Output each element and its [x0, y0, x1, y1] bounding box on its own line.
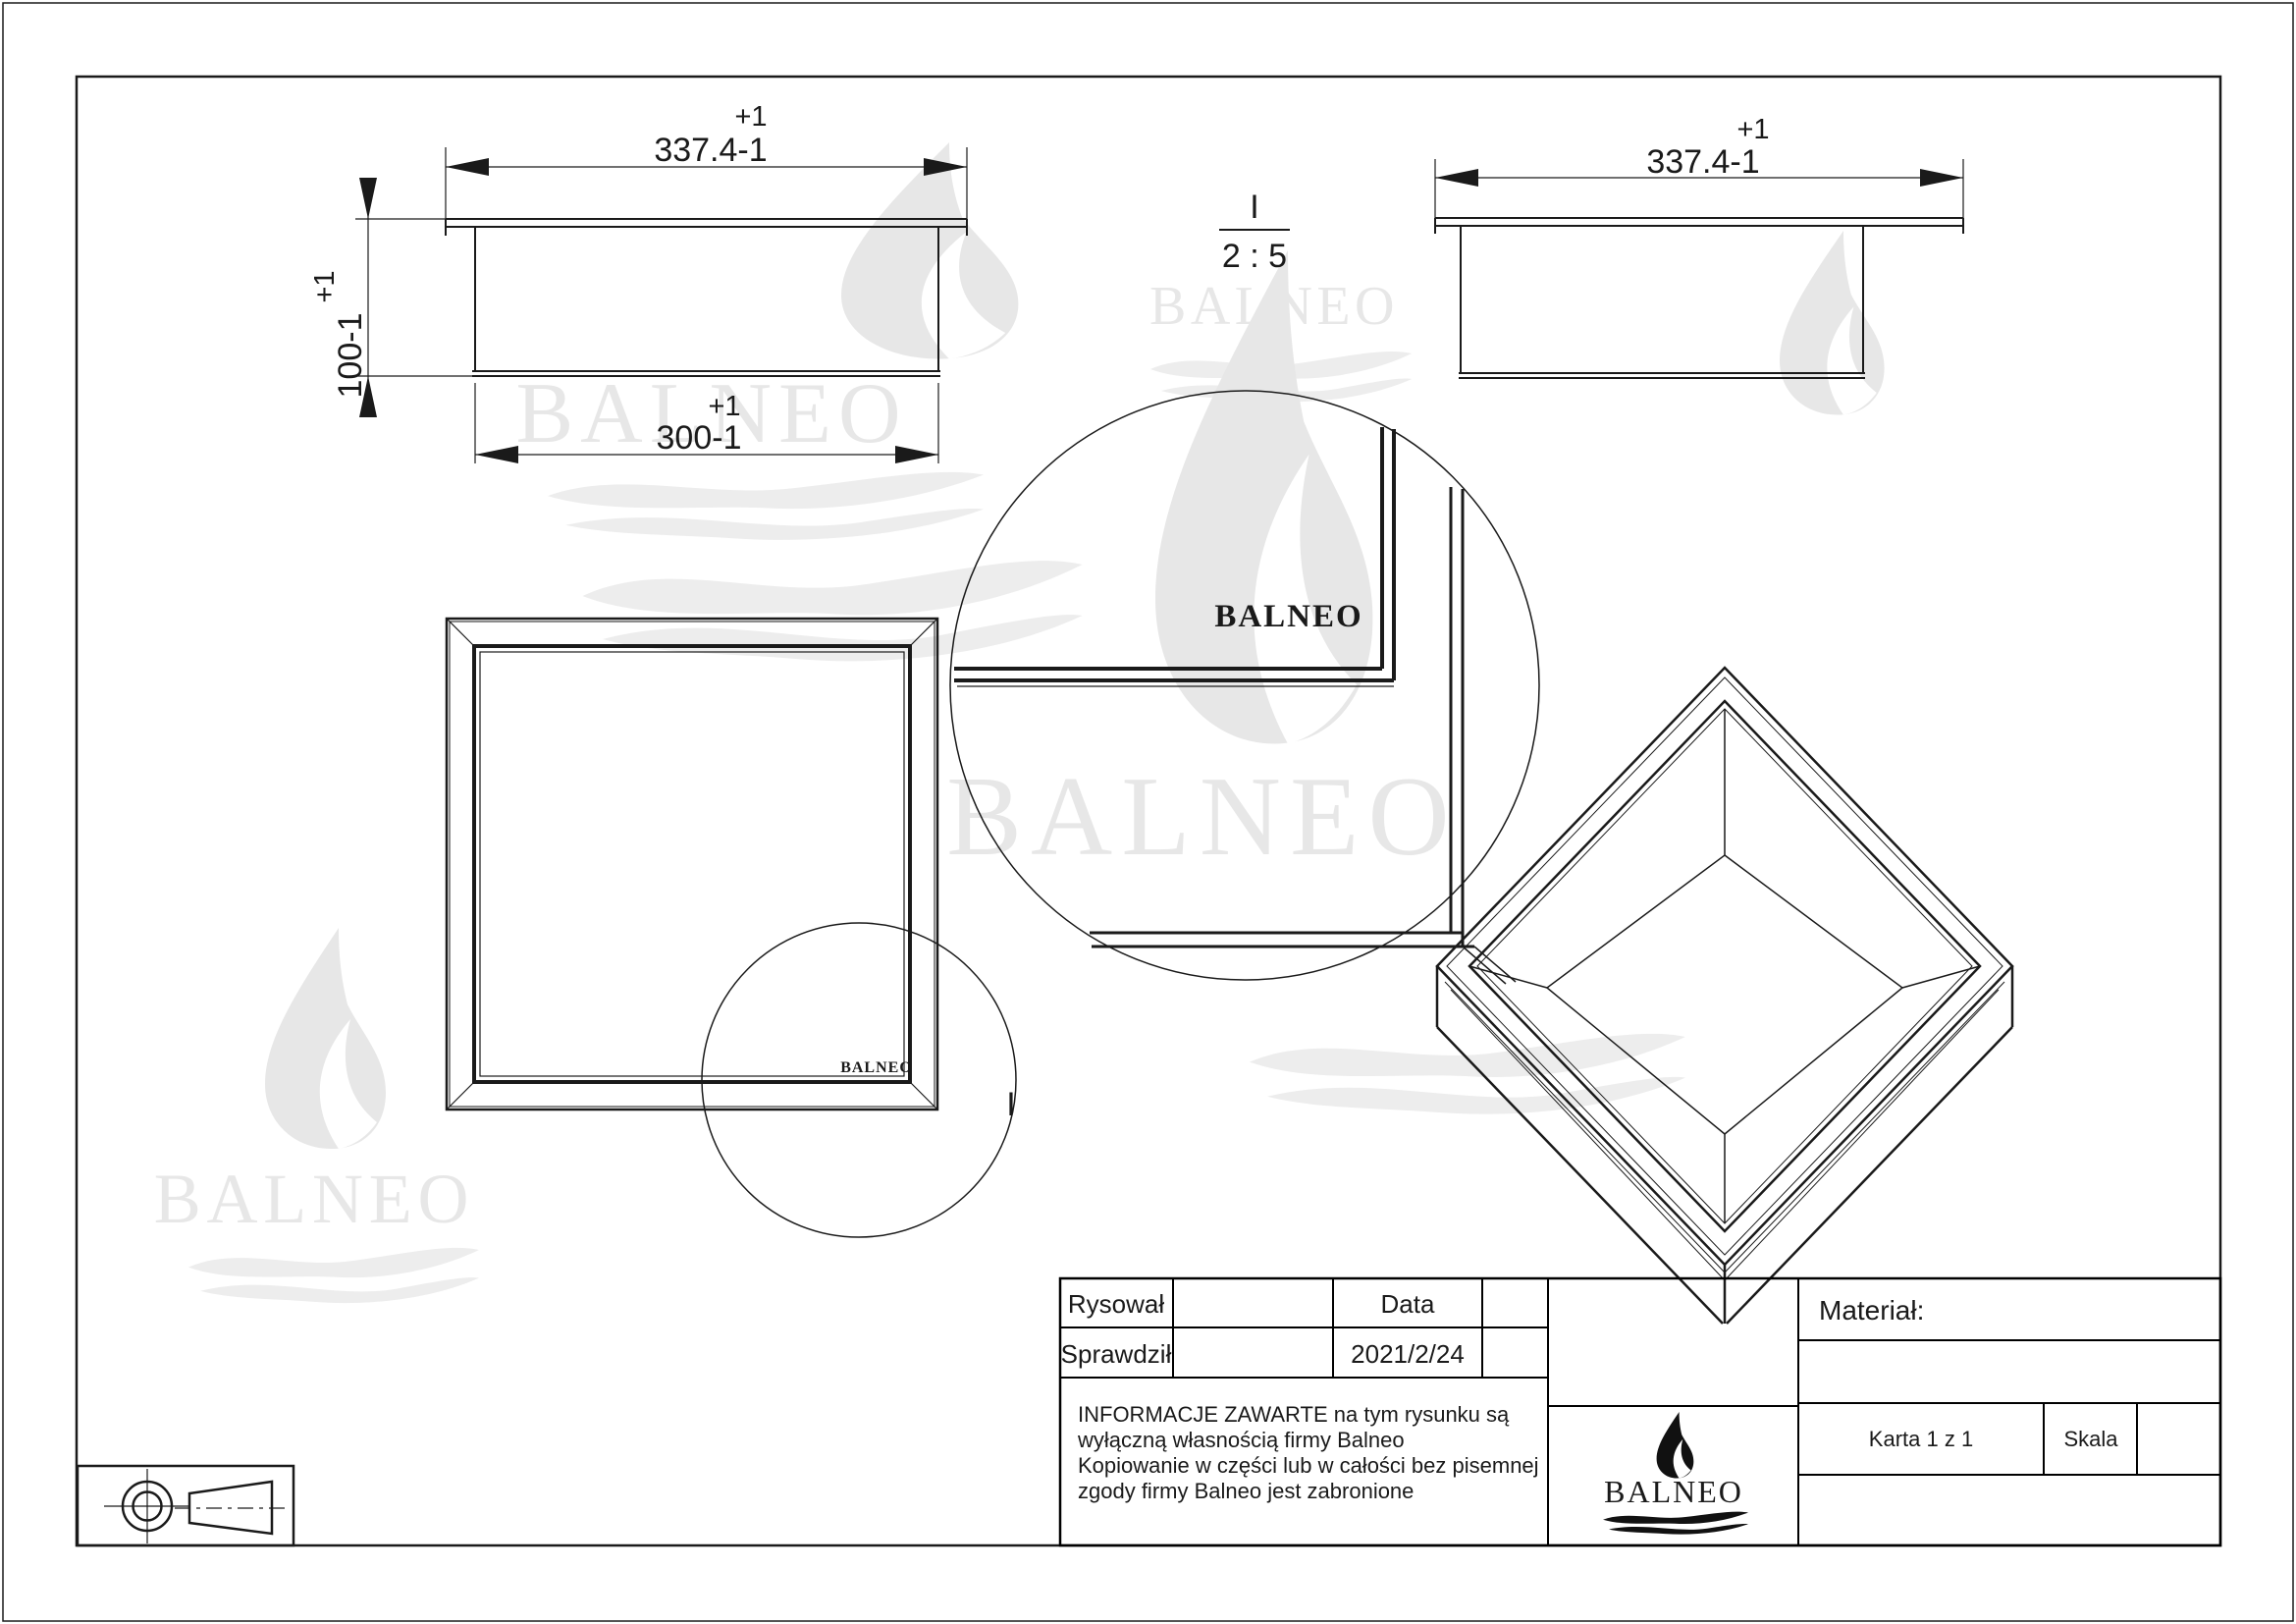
sheet-number: Karta 1 z 1 [1869, 1427, 1973, 1451]
notice-line-3: Kopiowanie w części lub w całości bez pi… [1078, 1453, 1539, 1478]
notice-line-4: zgody firmy Balneo jest zabronione [1078, 1479, 1414, 1503]
date-label: Data [1381, 1289, 1435, 1319]
dim-value: 100-1 [332, 313, 369, 399]
side-view [1435, 159, 1963, 378]
notice-line-2: wyłączną własnością firmy Balneo [1077, 1428, 1405, 1452]
engraved-logo: BALNEO [840, 1059, 913, 1076]
notice-line-1: INFORMACJE ZAWARTE na tym rysunku są [1078, 1402, 1510, 1427]
date-value: 2021/2/24 [1351, 1339, 1465, 1369]
isometric-view [1437, 668, 2012, 1324]
projection-symbol [78, 1466, 294, 1545]
detail-label: I [1250, 189, 1258, 226]
detail-circle-label: I [1006, 1086, 1015, 1123]
engraved-logo-magnified: BALNEO [1214, 599, 1362, 634]
balneo-logo-text: BALNEO [1604, 1474, 1743, 1509]
title-block-text: Rysował Sprawdził Data 2021/2/24 INFORMA… [1061, 1289, 2119, 1503]
drawing-sheet: BALNEO BALNEO BALNEO BALNEO [0, 0, 2296, 1624]
dim-value: 337.4-1 [1646, 143, 1759, 181]
dim-tolerance: +1 [734, 101, 767, 133]
checked-label: Sprawdził [1061, 1339, 1172, 1369]
dim-value: 300-1 [657, 419, 742, 457]
dim-tolerance: +1 [309, 270, 341, 302]
top-view [447, 619, 1016, 1237]
detail-reference: I 2 : 5 [1219, 189, 1290, 275]
drew-label: Rysował [1068, 1289, 1164, 1319]
dim-tolerance: +1 [708, 391, 740, 422]
dim-tolerance: +1 [1736, 114, 1769, 145]
material-label: Materiał: [1819, 1295, 1924, 1326]
balneo-logo: BALNEO [1603, 1412, 1748, 1535]
side-view-dims: +1 337.4-1 [1646, 114, 1769, 181]
watermark-text: BALNEO [154, 1160, 475, 1238]
detail-scale: 2 : 5 [1222, 238, 1287, 275]
watermark-text: BALNEO [946, 754, 1459, 879]
scale-label: Skala [2063, 1427, 2118, 1451]
dim-value: 337.4-1 [654, 132, 767, 169]
